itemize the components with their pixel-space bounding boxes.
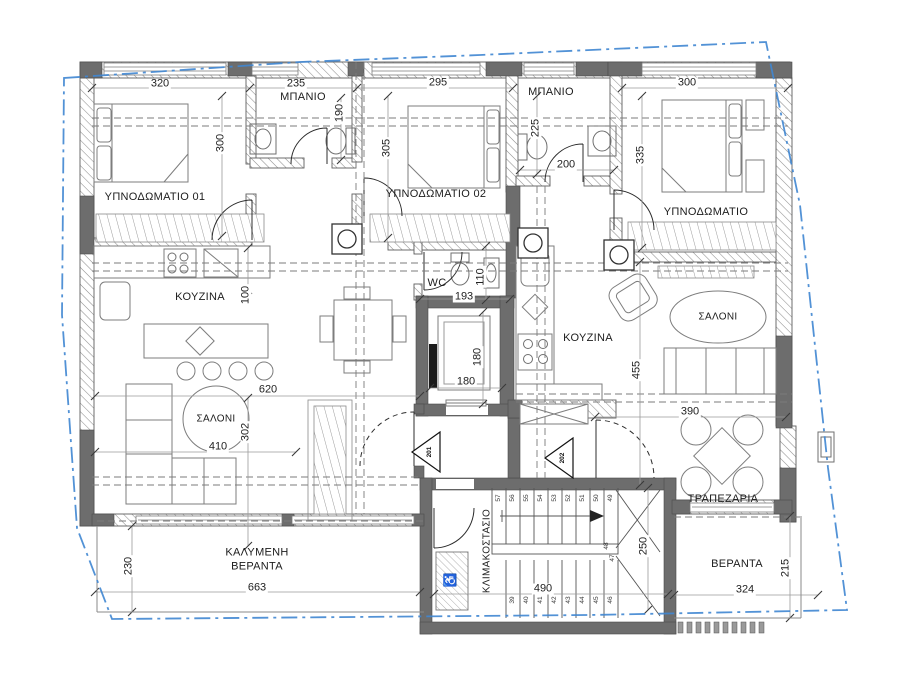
step-number: 47 <box>610 554 617 561</box>
dim-living1-w: 620 <box>257 385 279 396</box>
step-number: 45 <box>594 596 601 603</box>
dim-living1-h: 302 <box>241 421 252 443</box>
step-number: 51 <box>580 494 587 501</box>
dim-covered-veranda-w: 663 <box>246 583 268 594</box>
entrance-arrows <box>412 432 573 478</box>
door-number-apt2: 202 <box>560 453 567 464</box>
step-number: 40 <box>524 596 531 603</box>
room-label-wc: WC <box>428 277 447 289</box>
step-number: 46 <box>608 596 615 603</box>
dim-lift-h: 180 <box>473 346 484 368</box>
step-number: 43 <box>566 596 573 603</box>
room-label-living2: ΣΑΛΟΝΙ <box>699 312 738 323</box>
room-label-bedroom3: ΥΠΝΟΔΩΜΑΤΙΟ <box>664 206 748 218</box>
room-label-bath1: ΜΠΑΝΙΟ <box>280 91 326 103</box>
step-number: 52 <box>566 494 573 501</box>
floor-plan: ΥΠΝΟΔΩΜΑΤΙΟ 01 ΜΠΑΝΙΟ ΥΠΝΟΔΩΜΑΤΙΟ 02 ΜΠΑ… <box>0 0 920 679</box>
step-number: 42 <box>552 596 559 603</box>
dim-bedroom1-h: 300 <box>216 132 227 154</box>
dim-covered-veranda-h: 230 <box>124 555 135 577</box>
step-number: 57 <box>496 494 503 501</box>
dim-lift-w: 180 <box>455 377 477 388</box>
dim-kitchen1-d: 100 <box>241 284 252 306</box>
room-label-dining: ΤΡΑΠΕΖΑΡΙΑ <box>688 493 759 505</box>
room-label-bedroom2: ΥΠΝΟΔΩΜΑΤΙΟ 02 <box>386 188 487 200</box>
wheelchair-accessible-icon: ♿ <box>443 573 457 588</box>
dim-living2-w: 390 <box>679 407 701 418</box>
dim-bedroom2-w: 295 <box>427 78 449 89</box>
dim-sofa-w: 410 <box>207 442 229 453</box>
dim-kitchen2-h: 455 <box>632 359 643 381</box>
dim-bedroom2-h: 305 <box>382 137 393 159</box>
room-label-kitchen2: ΚΟΥΖΙΝΑ <box>563 332 613 344</box>
door-number-apt1: 201 <box>427 447 434 458</box>
room-label-bath2: ΜΠΑΝΙΟ <box>528 86 574 98</box>
step-number: 56 <box>510 494 517 501</box>
dim-bath1-d: 190 <box>335 102 346 124</box>
dim-bedroom1-w: 320 <box>149 79 171 90</box>
wall-openings <box>436 405 488 489</box>
dim-veranda-h: 215 <box>781 557 792 579</box>
dim-veranda-w: 324 <box>734 585 756 596</box>
step-number: 49 <box>608 494 615 501</box>
step-number: 48 <box>604 542 611 549</box>
dim-bedroom3-h: 335 <box>636 144 647 166</box>
step-number: 55 <box>524 494 531 501</box>
dim-stairs-w: 490 <box>532 584 554 595</box>
room-label-kitchen1: ΚΟΥΖΙΝΑ <box>175 291 225 303</box>
railing <box>678 622 764 633</box>
dim-wc-d: 110 <box>476 266 487 288</box>
room-label-covered-veranda: ΚΑΛΥΜΕΝΗ ΒΕΡΑΝΤΑ <box>225 546 288 575</box>
step-number: 53 <box>552 494 559 501</box>
dim-bedroom3-w: 300 <box>676 78 698 89</box>
room-label-living1: ΣΑΛΟΝΙ <box>197 414 236 425</box>
step-number: 44 <box>580 596 587 603</box>
dim-wc-w: 193 <box>453 292 475 303</box>
staircase <box>436 488 660 618</box>
room-label-bedroom1: ΥΠΝΟΔΩΜΑΤΙΟ 01 <box>105 191 206 203</box>
covered-veranda-line1: ΚΑΛΥΜΕΝΗ <box>225 547 288 559</box>
dim-stairs-h: 250 <box>639 535 650 557</box>
covered-veranda-line2: ΒΕΡΑΝΤΑ <box>231 561 283 573</box>
room-label-stairs: ΚΛΙΜΑΚΟΣΤΑΣΙΟ <box>482 509 493 593</box>
dim-bath2-w: 200 <box>555 160 577 171</box>
step-number: 50 <box>594 494 601 501</box>
step-number: 54 <box>538 494 545 501</box>
step-number: 39 <box>510 596 517 603</box>
dim-bath2-d: 225 <box>531 117 542 139</box>
step-number: 41 <box>538 596 545 603</box>
room-label-veranda: ΒΕΡΑΝΤΑ <box>711 558 763 570</box>
dim-bath1-w: 235 <box>285 79 307 90</box>
